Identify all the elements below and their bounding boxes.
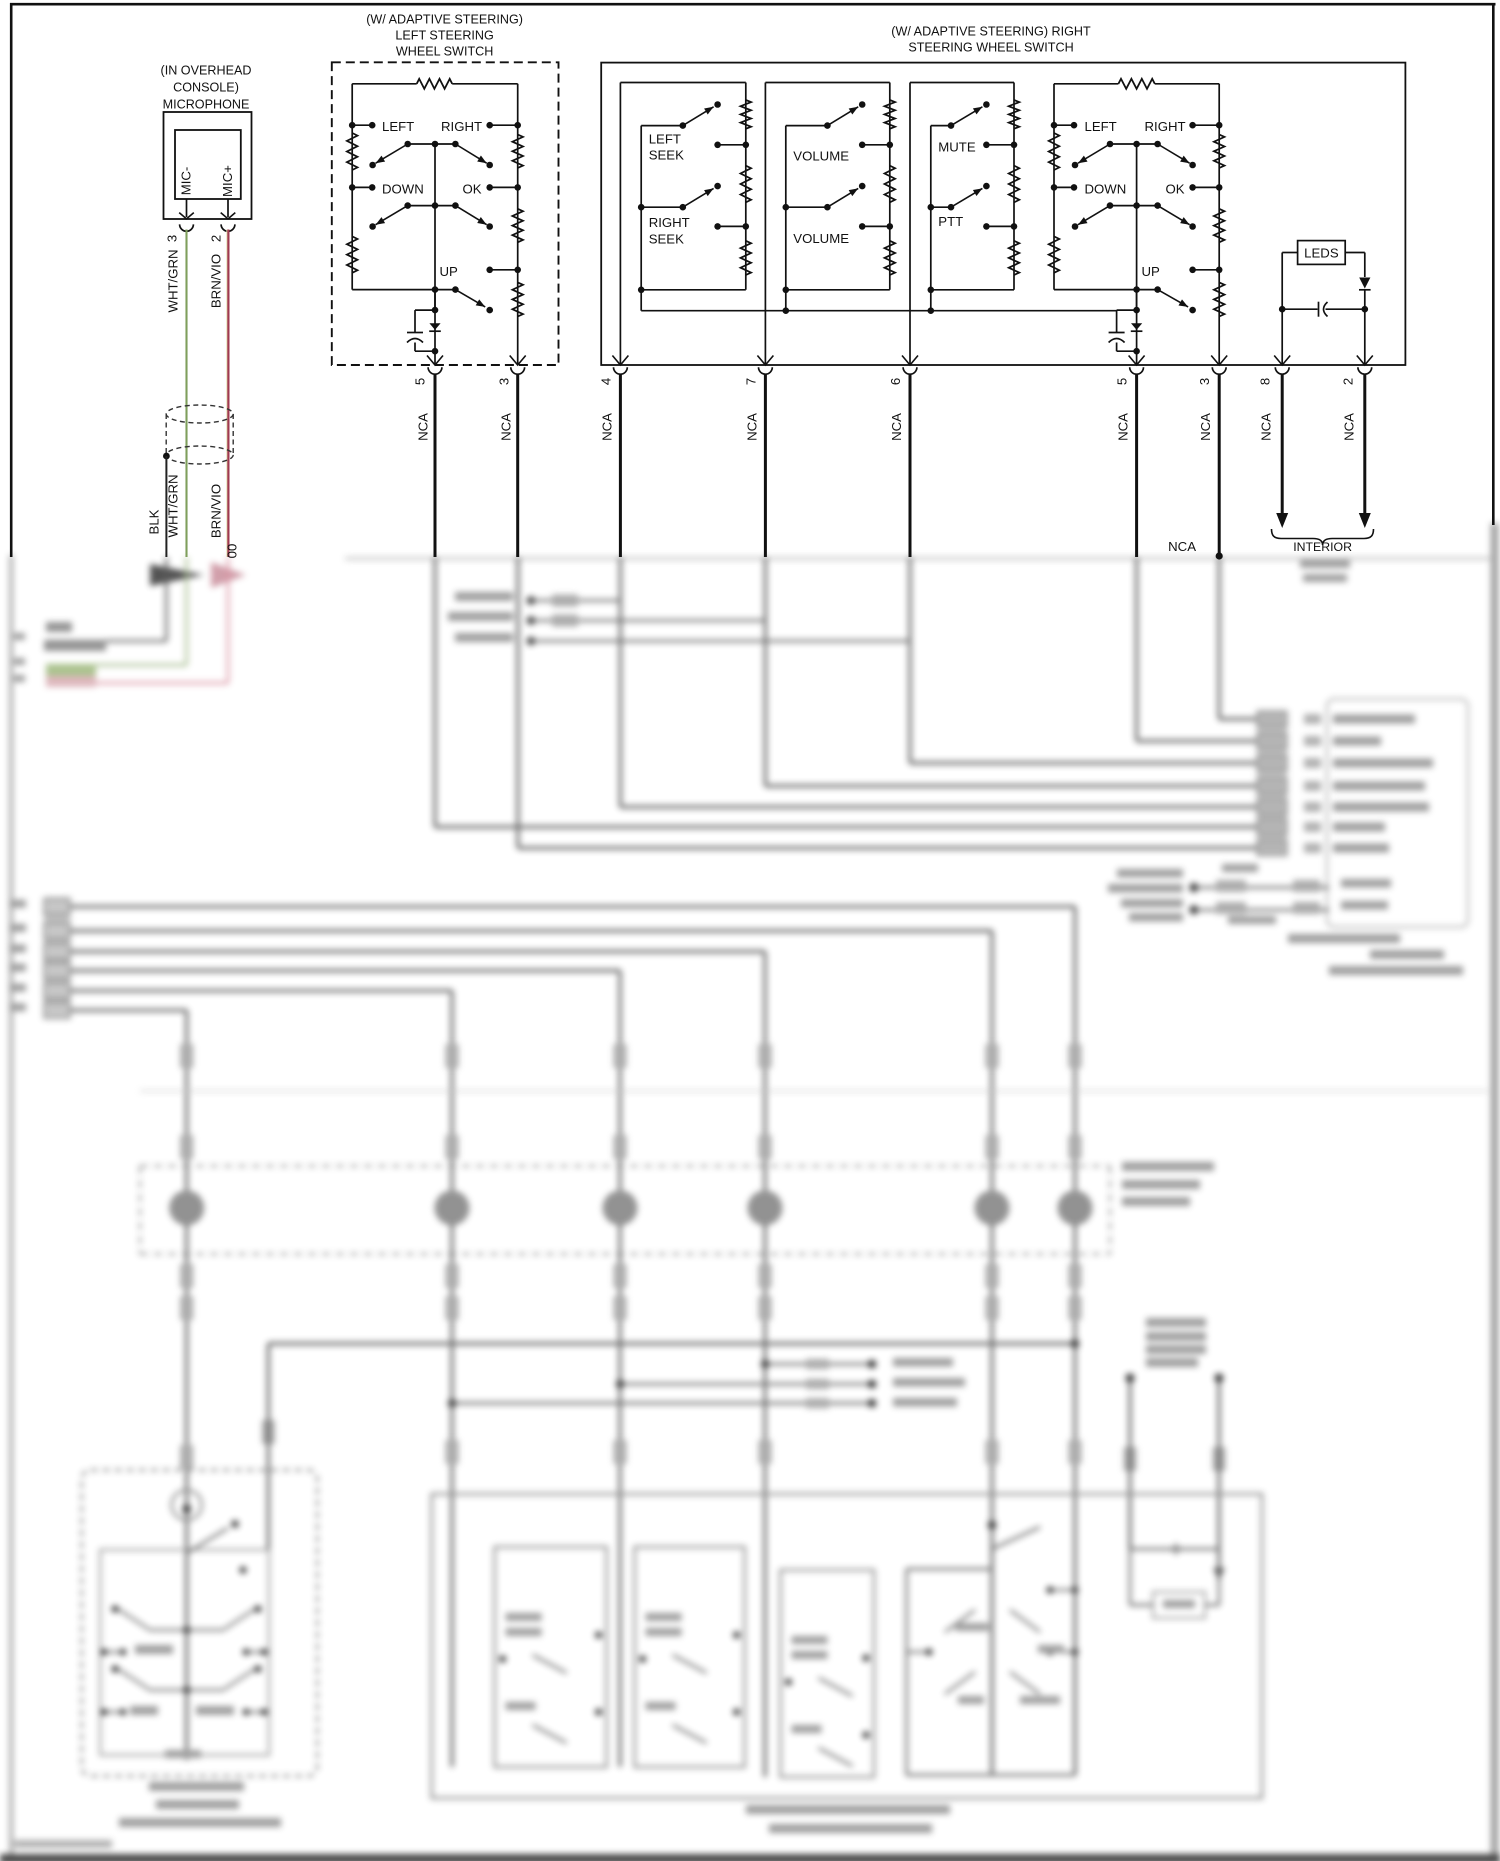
svg-text:BLK: BLK: [147, 509, 162, 534]
svg-text:2: 2: [1341, 378, 1356, 385]
svg-text:OK: OK: [1166, 181, 1185, 196]
svg-text:LEFT: LEFT: [649, 131, 681, 146]
svg-text:WHT/GRN: WHT/GRN: [166, 250, 181, 313]
svg-text:MIC-: MIC-: [179, 167, 194, 196]
svg-text:WHEEL SWITCH: WHEEL SWITCH: [396, 45, 494, 59]
svg-text:MUTE: MUTE: [938, 140, 976, 155]
svg-text:5: 5: [413, 378, 428, 385]
svg-text:LEDS: LEDS: [1304, 246, 1339, 261]
svg-text:00: 00: [225, 544, 240, 559]
svg-text:(IN OVERHEAD: (IN OVERHEAD: [161, 64, 252, 78]
svg-text:WHT/GRN: WHT/GRN: [166, 475, 181, 538]
svg-text:NCA: NCA: [1259, 413, 1274, 441]
svg-text:BRN/VIO: BRN/VIO: [209, 484, 224, 538]
svg-text:BRN/VIO: BRN/VIO: [209, 254, 224, 308]
svg-text:DOWN: DOWN: [1085, 181, 1127, 196]
svg-text:INTERIOR: INTERIOR: [1293, 540, 1352, 554]
svg-text:SEEK: SEEK: [649, 148, 684, 163]
svg-text:NCA: NCA: [1198, 413, 1213, 441]
svg-text:3: 3: [165, 235, 180, 242]
svg-text:(W/ ADAPTIVE STEERING) RIGHT: (W/ ADAPTIVE STEERING) RIGHT: [891, 25, 1091, 39]
svg-text:UP: UP: [440, 264, 459, 279]
svg-text:NCA: NCA: [499, 413, 514, 441]
svg-text:LEFT: LEFT: [1085, 119, 1117, 134]
svg-text:MIC+: MIC+: [220, 165, 235, 197]
svg-text:NCA: NCA: [1116, 413, 1131, 441]
svg-text:NCA: NCA: [600, 413, 615, 441]
svg-text:LEFT STEERING: LEFT STEERING: [395, 29, 493, 43]
svg-text:SEEK: SEEK: [649, 231, 684, 246]
svg-text:PTT: PTT: [938, 214, 963, 229]
svg-text:CONSOLE): CONSOLE): [173, 81, 239, 95]
svg-text:5: 5: [1115, 378, 1130, 385]
svg-text:UP: UP: [1142, 264, 1161, 279]
svg-text:NCA: NCA: [416, 413, 431, 441]
svg-text:NCA: NCA: [1168, 539, 1196, 554]
svg-text:LEFT: LEFT: [382, 119, 414, 134]
svg-text:8: 8: [1258, 378, 1273, 385]
svg-text:NCA: NCA: [889, 413, 904, 441]
svg-text:RIGHT: RIGHT: [649, 215, 690, 230]
svg-text:MICROPHONE: MICROPHONE: [163, 98, 250, 112]
svg-text:VOLUME: VOLUME: [793, 231, 849, 246]
svg-text:4: 4: [599, 378, 614, 385]
svg-text:STEERING WHEEL SWITCH: STEERING WHEEL SWITCH: [908, 40, 1073, 54]
svg-text:OK: OK: [463, 181, 482, 196]
svg-text:6: 6: [888, 378, 903, 385]
svg-text:(W/ ADAPTIVE STEERING): (W/ ADAPTIVE STEERING): [366, 13, 523, 27]
svg-text:RIGHT: RIGHT: [1145, 119, 1186, 134]
svg-text:DOWN: DOWN: [382, 181, 424, 196]
svg-text:3: 3: [497, 378, 512, 385]
svg-text:NCA: NCA: [1342, 413, 1357, 441]
svg-text:2: 2: [209, 235, 224, 242]
svg-text:VOLUME: VOLUME: [793, 149, 849, 164]
svg-text:3: 3: [1197, 378, 1212, 385]
svg-text:NCA: NCA: [745, 413, 760, 441]
svg-text:7: 7: [744, 378, 759, 385]
svg-text:RIGHT: RIGHT: [441, 119, 482, 134]
